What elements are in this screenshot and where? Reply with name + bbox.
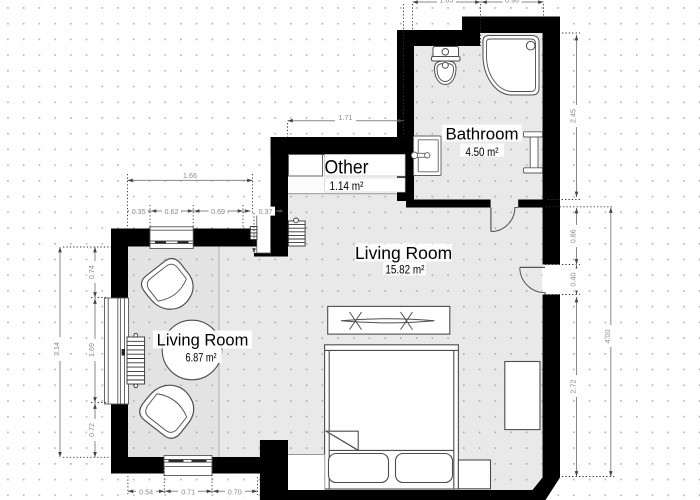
svg-text:3.14: 3.14 — [52, 342, 61, 356]
svg-text:4.50 m²: 4.50 m² — [466, 145, 499, 159]
svg-text:1.71: 1.71 — [339, 113, 353, 122]
svg-text:Bathroom: Bathroom — [446, 126, 519, 144]
svg-text:0.71: 0.71 — [181, 487, 195, 496]
svg-text:15.82 m²: 15.82 m² — [385, 263, 424, 277]
svg-text:0.74: 0.74 — [87, 265, 96, 279]
svg-text:0.69: 0.69 — [211, 207, 225, 216]
svg-text:Other: Other — [325, 158, 370, 179]
svg-text:0.86: 0.86 — [569, 229, 578, 243]
svg-text:1.66: 1.66 — [183, 171, 197, 180]
svg-text:0.72: 0.72 — [87, 423, 96, 437]
svg-text:2.45: 2.45 — [569, 109, 578, 123]
svg-text:0.54: 0.54 — [139, 487, 153, 496]
svg-text:6.87 m²: 6.87 m² — [186, 351, 217, 365]
svg-text:Living Room: Living Room — [157, 332, 249, 350]
svg-text:4.00: 4.00 — [603, 330, 612, 344]
svg-text:0.98: 0.98 — [505, 0, 519, 5]
svg-text:1.05: 1.05 — [440, 0, 454, 5]
svg-text:0.40: 0.40 — [569, 273, 578, 287]
svg-text:0.37: 0.37 — [259, 207, 273, 216]
svg-text:0.35: 0.35 — [132, 207, 146, 216]
svg-text:2.72: 2.72 — [569, 380, 578, 394]
svg-text:1.14 m²: 1.14 m² — [330, 179, 364, 193]
svg-text:0.70: 0.70 — [228, 487, 242, 496]
svg-text:0.62: 0.62 — [165, 207, 179, 216]
svg-text:Living Room: Living Room — [355, 243, 452, 263]
svg-text:1.69: 1.69 — [87, 343, 96, 357]
